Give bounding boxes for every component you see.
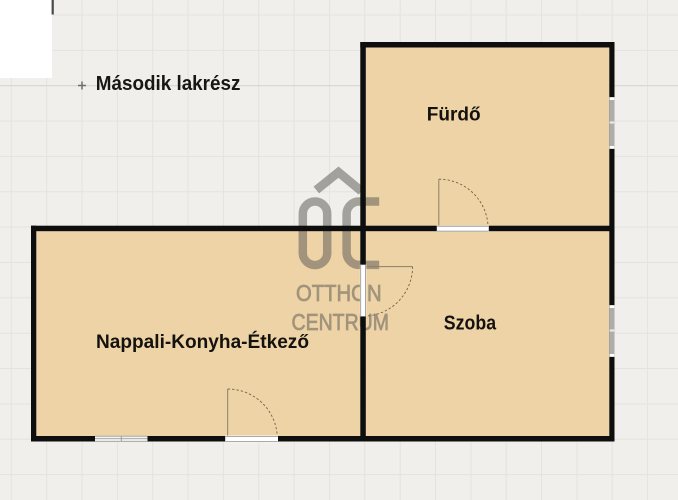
svg-text:Nappali-Konyha-Étkező: Nappali-Konyha-Étkező bbox=[96, 330, 309, 353]
svg-text:Szoba: Szoba bbox=[444, 311, 497, 334]
svg-text:Második lakrész: Második lakrész bbox=[96, 73, 241, 95]
svg-text:OTTHON: OTTHON bbox=[296, 280, 382, 306]
svg-text:Fürdő: Fürdő bbox=[427, 105, 481, 126]
